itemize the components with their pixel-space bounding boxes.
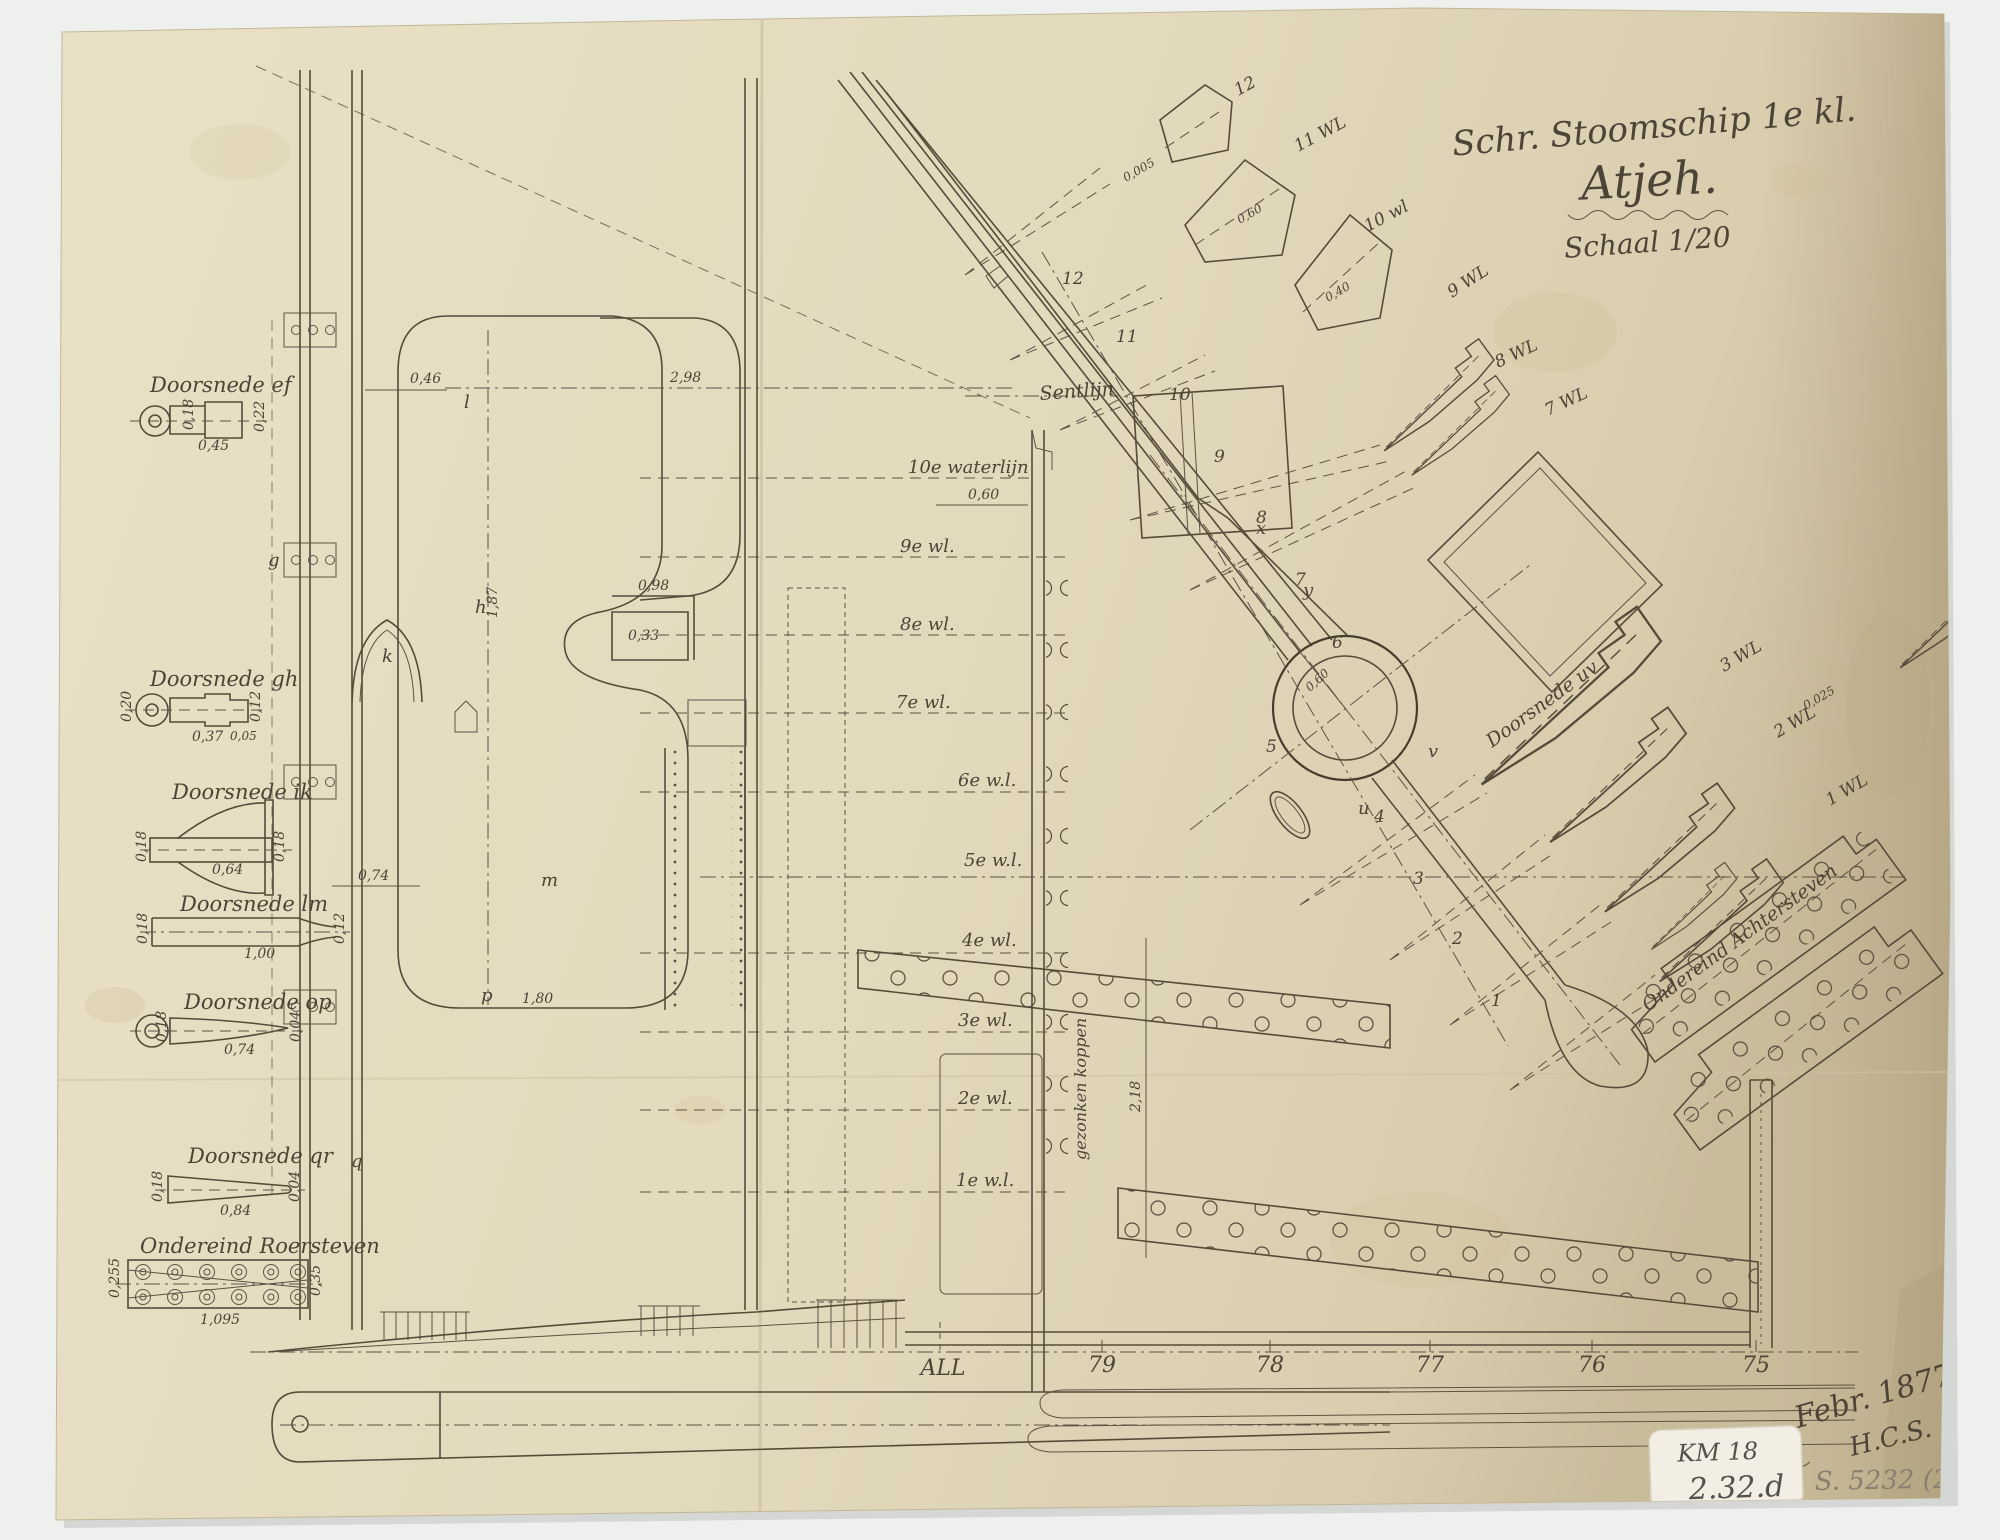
frame-number: 75 bbox=[1742, 1353, 1770, 1378]
dim-text: 1,87 bbox=[485, 587, 501, 618]
dim-lm-right: 0,12 bbox=[332, 913, 348, 944]
dim-text: 0,60 bbox=[968, 487, 999, 503]
waterline-label: 2e wl. bbox=[957, 1088, 1013, 1109]
dim-text: 2,18 bbox=[1128, 1081, 1144, 1113]
dim-op-side: 0,18 bbox=[154, 1011, 170, 1042]
dim-lm-main: 1,00 bbox=[244, 946, 275, 962]
section-label-gh: Doorsnede gh bbox=[149, 667, 298, 691]
station-number: 12 bbox=[1062, 269, 1084, 289]
frame-number: ALL bbox=[918, 1356, 965, 1381]
station-number: 4 bbox=[1373, 807, 1385, 827]
dim-qr-right: 0,04 bbox=[287, 1171, 303, 1202]
station-number: 10 bbox=[1169, 385, 1191, 405]
dim-text: 0,98 bbox=[638, 578, 669, 594]
dim-qr-side: 0,18 bbox=[150, 1171, 166, 1202]
marker-letter: g bbox=[268, 550, 280, 571]
marker-letter: l bbox=[464, 392, 470, 413]
marker-letter: y bbox=[1302, 580, 1314, 601]
waterline-label: 5e w.l. bbox=[964, 850, 1022, 871]
marker-letter: p bbox=[481, 985, 493, 1006]
dim-gh-main: 0,37 bbox=[192, 729, 223, 745]
station-number: 11 bbox=[1116, 327, 1138, 347]
station-number: 6 bbox=[1332, 633, 1343, 653]
frame-number: 79 bbox=[1088, 1353, 1116, 1378]
dim-gh-side: 0,20 bbox=[119, 691, 135, 722]
section-label-qr: Doorsnede qr bbox=[187, 1144, 335, 1168]
dim-gh-extra: 0,05 bbox=[230, 729, 257, 743]
section-label-ik: Doorsnede ik bbox=[171, 780, 313, 804]
frame-number: 78 bbox=[1256, 1353, 1284, 1378]
station-number: 5 bbox=[1266, 737, 1277, 757]
dim-roersteven-main: 1,095 bbox=[200, 1312, 240, 1328]
dim-ik-right: 0,18 bbox=[272, 831, 288, 862]
dim-ef-main: 0,45 bbox=[198, 438, 229, 454]
title-line2: Atjeh. bbox=[1576, 149, 1719, 210]
waterline-label: 3e wl. bbox=[958, 1010, 1013, 1031]
marker-letter: u bbox=[1358, 798, 1370, 819]
dim-op-right: 0,04 bbox=[288, 1011, 304, 1042]
waterline-label: 9e wl. bbox=[900, 536, 955, 557]
dim-ik-main: 0,64 bbox=[212, 862, 243, 878]
dim-text: 2,98 bbox=[669, 370, 701, 386]
dim-lm-side: 0,18 bbox=[135, 913, 151, 944]
section-label-op: Doorsnede op bbox=[183, 990, 332, 1014]
section-label-roersteven: Ondereind Roersteven bbox=[140, 1234, 380, 1258]
marker-letter: v bbox=[1428, 741, 1438, 762]
dim-roersteven-right: 0,35 bbox=[308, 1265, 324, 1296]
section-label-ef: Doorsnede ef bbox=[149, 373, 295, 397]
waterline-label: 1e w.l. bbox=[956, 1170, 1014, 1191]
frame-number: 77 bbox=[1416, 1353, 1444, 1378]
waterline-label: 8e wl. bbox=[900, 614, 955, 635]
blueprint-drawing: Schr. Stoomschip 1e kl. Atjeh. Schaal 1/… bbox=[0, 0, 2000, 1540]
section-label-lm: Doorsnede lm bbox=[179, 892, 328, 916]
gezonken-koppen-label: gezonken koppen bbox=[1071, 1018, 1090, 1160]
waterline-label: 4e wl. bbox=[961, 930, 1017, 951]
dim-ik-side: 0,18 bbox=[134, 831, 150, 862]
marker-letter: k bbox=[382, 646, 393, 667]
dim-text: 0,74 bbox=[358, 868, 389, 884]
dim-ef-right: 0,22 bbox=[252, 401, 268, 432]
frame-number: 76 bbox=[1578, 1353, 1606, 1378]
marker-letter: m bbox=[541, 870, 558, 891]
station-number: 1 bbox=[1491, 991, 1502, 1011]
dim-op-main: 0,74 bbox=[224, 1042, 255, 1058]
dim-text: 0,33 bbox=[628, 628, 659, 644]
marker-letter: x bbox=[1256, 518, 1266, 539]
waterline-label: 10e waterlijn bbox=[908, 457, 1029, 478]
station-number: 3 bbox=[1413, 869, 1424, 889]
dim-qr-main: 0,84 bbox=[220, 1203, 251, 1219]
dim-roersteven-side: 0,255 bbox=[107, 1258, 123, 1298]
dim-ef-side: 0,18 bbox=[181, 399, 197, 430]
dim-text: 1,80 bbox=[522, 991, 553, 1007]
station-number: 9 bbox=[1214, 447, 1225, 467]
dim-text: 0,46 bbox=[410, 371, 441, 387]
scanned-blueprint-page: Schr. Stoomschip 1e kl. Atjeh. Schaal 1/… bbox=[0, 0, 2000, 1540]
waterline-label: 6e w.l. bbox=[958, 770, 1016, 791]
sticker-line1: KM 18 bbox=[1676, 1437, 1759, 1468]
dim-gh-right: 0,12 bbox=[248, 691, 264, 722]
station-number: 2 bbox=[1451, 929, 1463, 949]
waterline-label: 7e wl. bbox=[896, 692, 951, 713]
marker-letter: q bbox=[351, 1151, 363, 1172]
